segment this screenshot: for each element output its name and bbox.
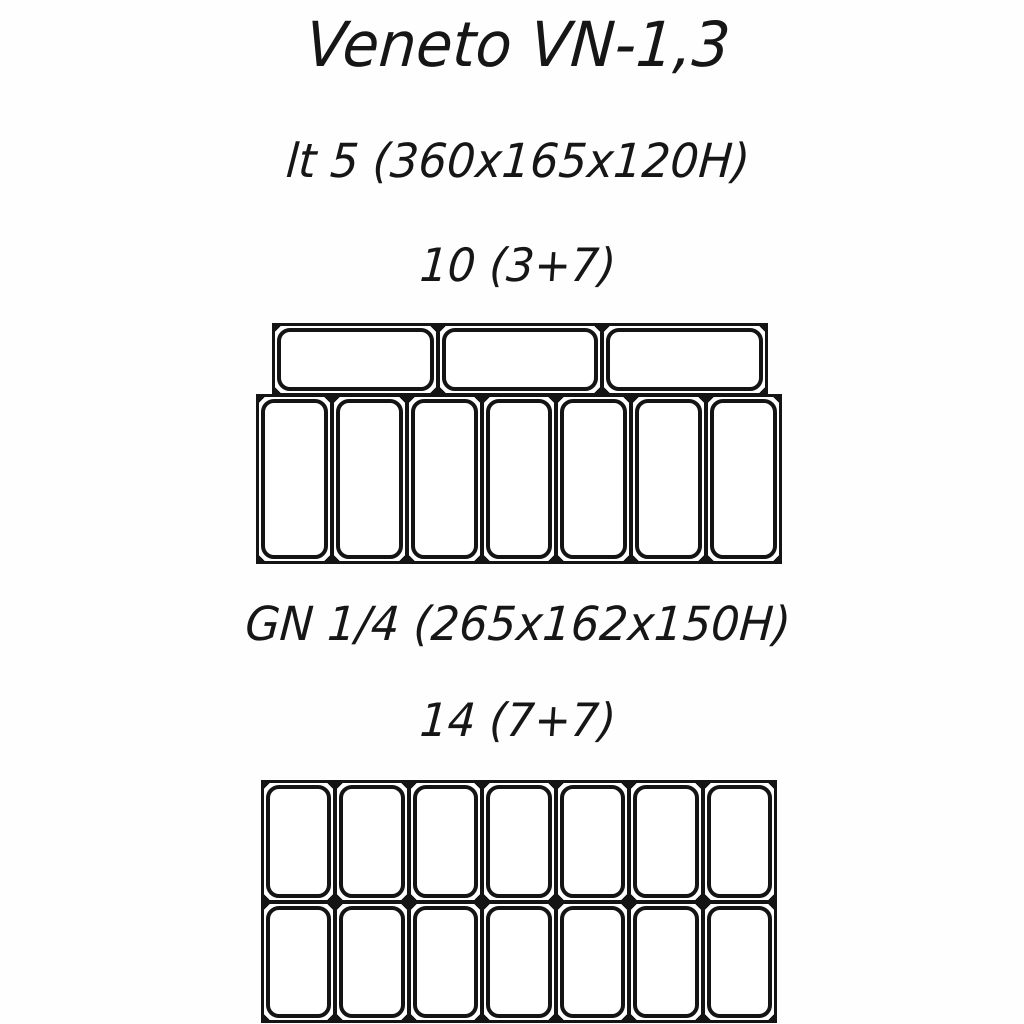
pan [411,904,480,1021]
pan [708,397,779,561]
pan [484,904,553,1021]
pan [337,783,406,900]
pan [334,397,405,561]
pan [275,326,436,393]
pan [705,904,774,1021]
config1-pan-count: 10 (3+7) [36,242,1001,288]
pan [631,783,700,900]
pan [337,904,406,1021]
pan [484,397,555,561]
pan [264,904,333,1021]
config2-pan-grid [261,780,777,1023]
page-title: Veneto VN-1,3 [35,14,1001,76]
pan [409,397,480,561]
pan [411,783,480,900]
pan [633,397,704,561]
pan [558,783,627,900]
pan [259,397,330,561]
config1-pan-spec: lt 5 (360x165x120H) [36,138,1001,185]
config2-pan-spec: GN 1/4 (265x162x150H) [36,601,1001,648]
pan [264,783,333,900]
config1-bottom-tray-row [256,394,782,564]
pan [558,397,629,561]
pan [604,326,765,393]
config2-pan-count: 14 (7+7) [36,697,1001,743]
pan [484,783,553,900]
pan [558,904,627,1021]
drawing-sheet: Veneto VN-1,3 lt 5 (360x165x120H) 10 (3+… [0,0,1024,1024]
pan [705,783,774,900]
config1-top-tray-row [272,323,768,396]
pan [440,326,601,393]
pan [631,904,700,1021]
